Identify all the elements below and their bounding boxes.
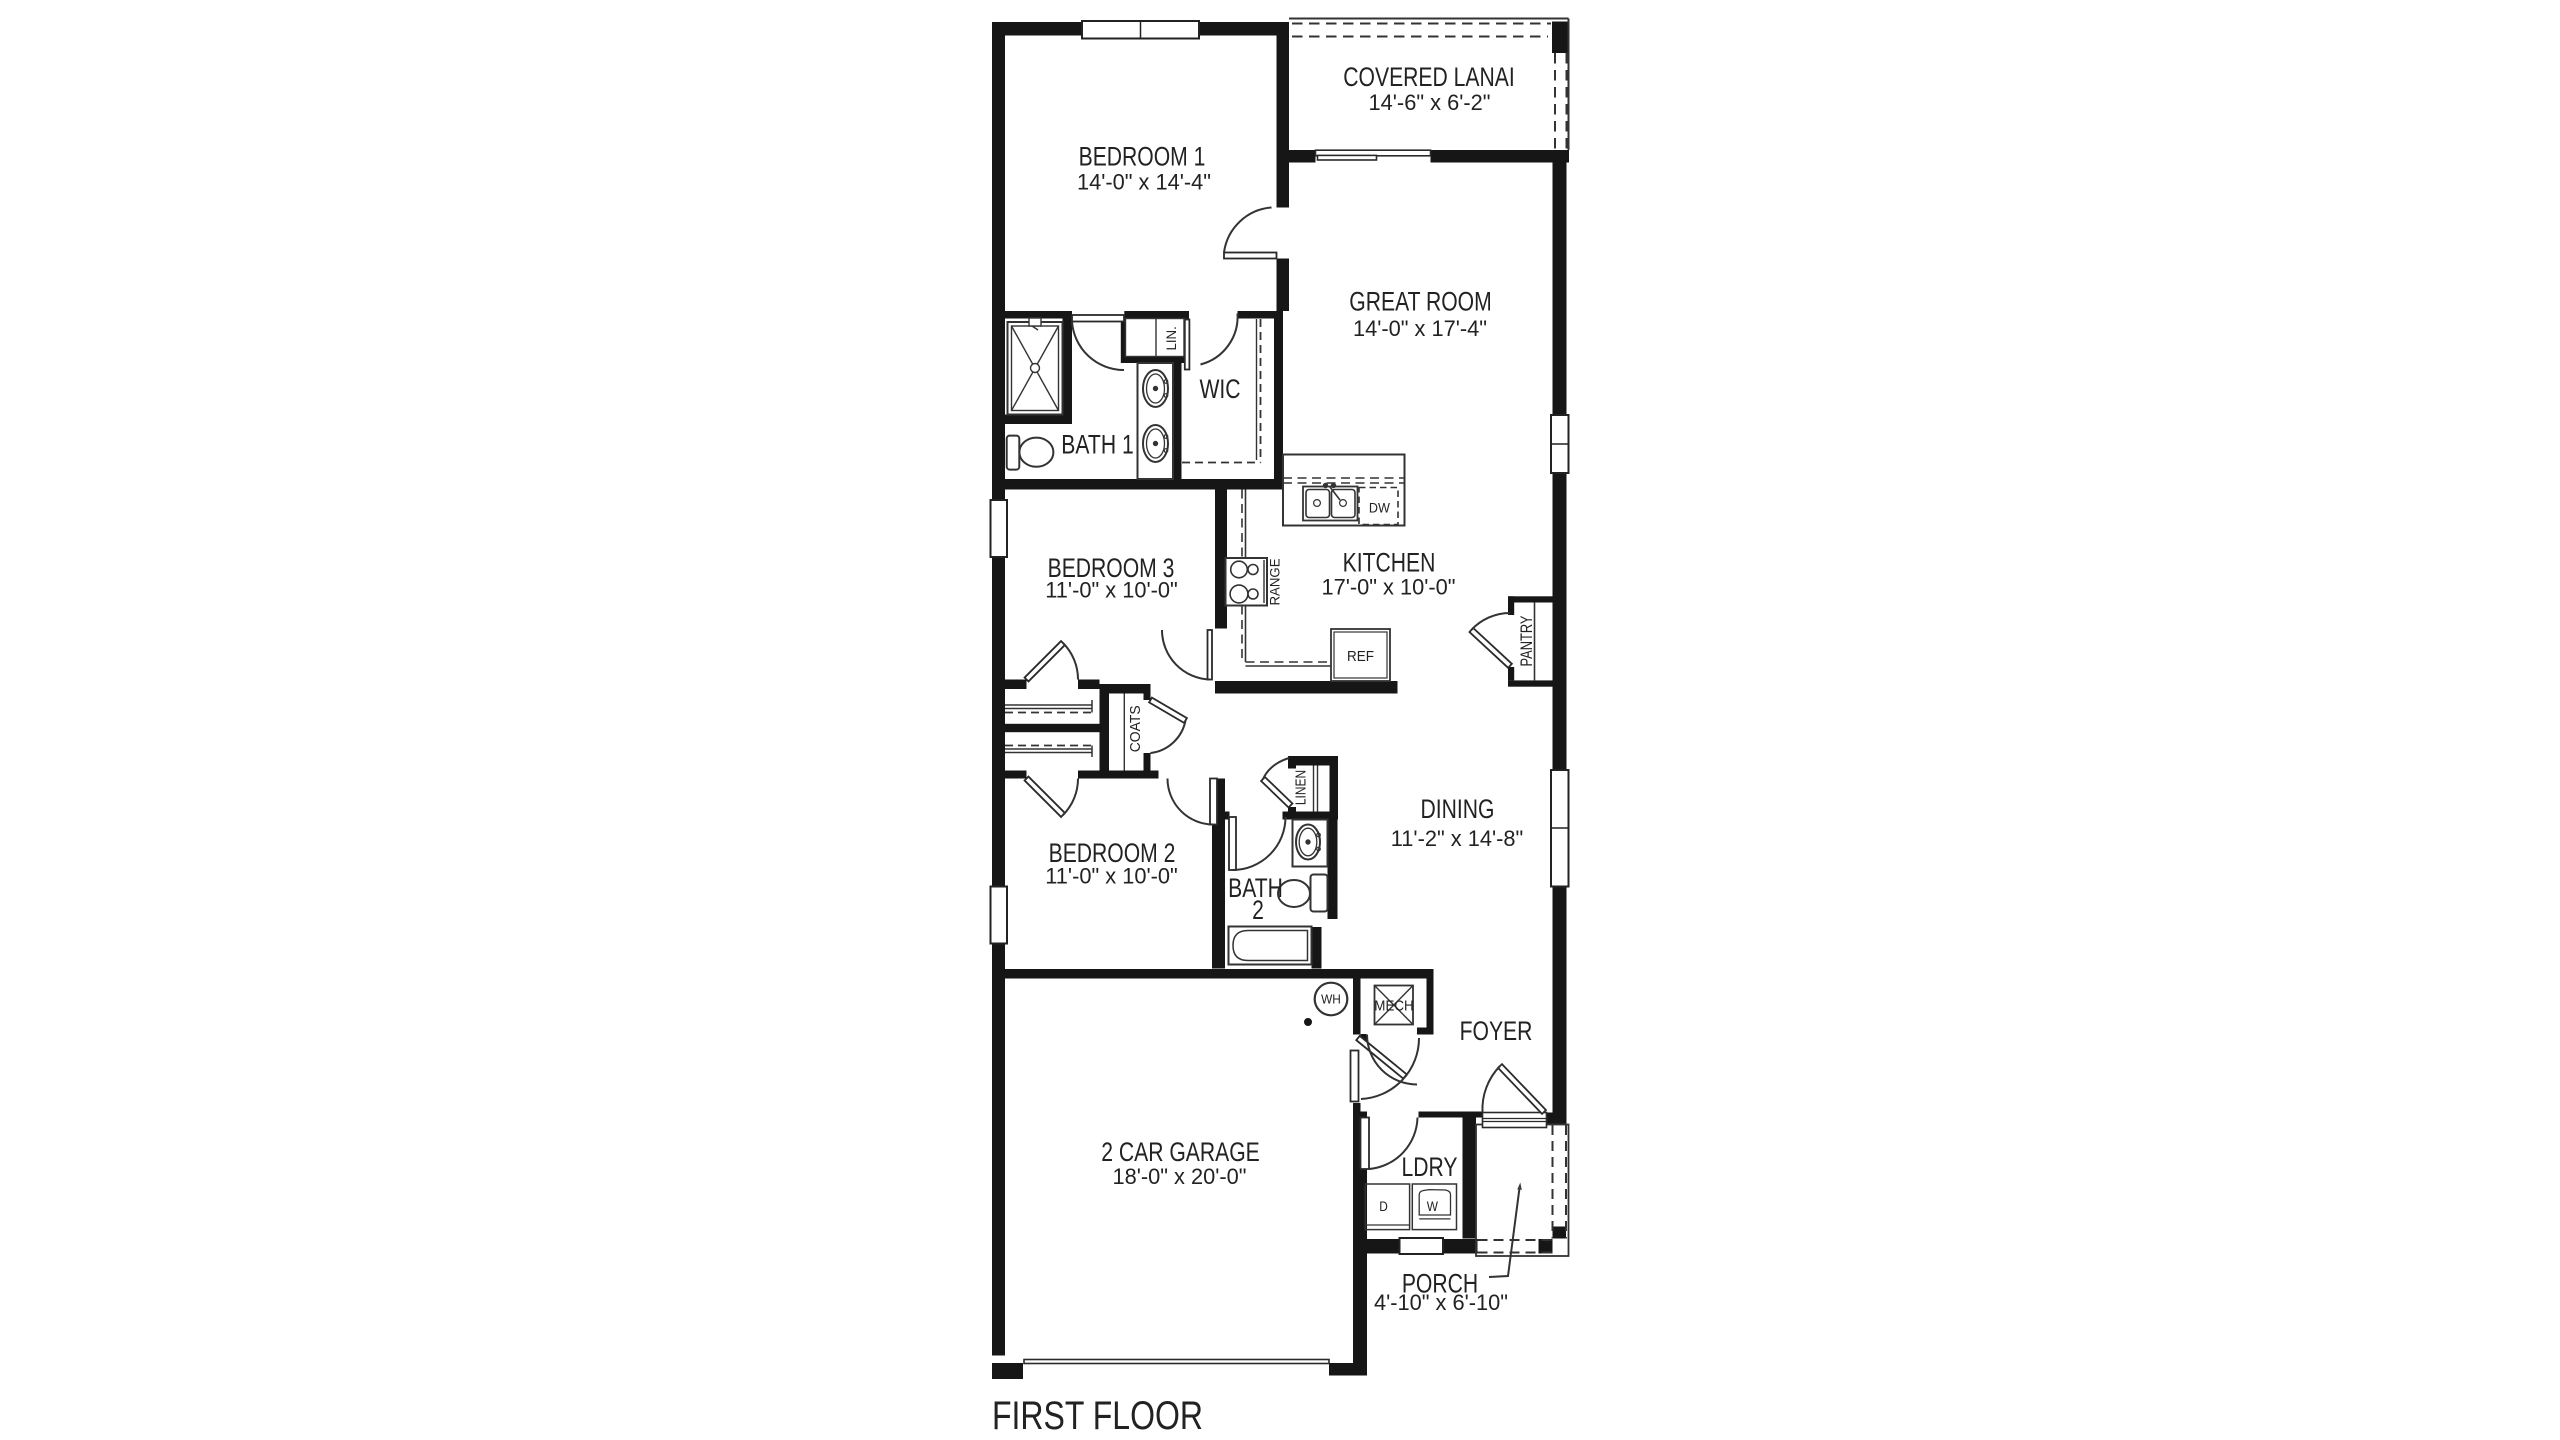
svg-text:LINEN: LINEN <box>1292 770 1309 805</box>
svg-text:LIN.: LIN. <box>1164 326 1179 350</box>
svg-text:4'-10" x 6'-10": 4'-10" x 6'-10" <box>1374 1290 1508 1315</box>
svg-text:D: D <box>1379 1198 1388 1214</box>
svg-text:RANGE: RANGE <box>1267 558 1282 605</box>
svg-text:11'-2" x 14'-8": 11'-2" x 14'-8" <box>1391 826 1523 851</box>
svg-text:REF: REF <box>1347 648 1374 665</box>
svg-text:2: 2 <box>1252 896 1264 926</box>
svg-text:11'-0" x 10'-0": 11'-0" x 10'-0" <box>1045 578 1177 603</box>
svg-text:14'-0" x 17'-4": 14'-0" x 17'-4" <box>1353 316 1487 341</box>
svg-text:14'-0" x 14'-4": 14'-0" x 14'-4" <box>1077 170 1211 195</box>
svg-text:18'-0" x 20'-0": 18'-0" x 20'-0" <box>1112 1164 1246 1189</box>
svg-text:DINING: DINING <box>1421 795 1495 825</box>
svg-text:WH: WH <box>1321 992 1341 1006</box>
svg-text:W: W <box>1427 1198 1439 1214</box>
svg-text:WIC: WIC <box>1199 375 1240 405</box>
svg-text:PANTRY: PANTRY <box>1519 615 1537 666</box>
svg-text:BATH 1: BATH 1 <box>1061 430 1133 460</box>
svg-text:14'-6" x 6'-2": 14'-6" x 6'-2" <box>1369 90 1491 115</box>
svg-text:17'-0" x 10'-0": 17'-0" x 10'-0" <box>1321 575 1455 600</box>
svg-text:FIRST FLOOR: FIRST FLOOR <box>992 1393 1203 1438</box>
svg-text:FOYER: FOYER <box>1460 1017 1533 1047</box>
svg-text:COATS: COATS <box>1128 705 1144 752</box>
svg-text:LDRY: LDRY <box>1402 1153 1458 1183</box>
svg-text:MECH: MECH <box>1374 997 1413 1014</box>
svg-text:11'-0" x 10'-0": 11'-0" x 10'-0" <box>1045 864 1177 889</box>
svg-text:COVERED LANAI: COVERED LANAI <box>1343 63 1514 93</box>
svg-text:GREAT ROOM: GREAT ROOM <box>1349 287 1491 317</box>
svg-text:BEDROOM 1: BEDROOM 1 <box>1079 142 1206 172</box>
svg-text:DW: DW <box>1369 500 1390 516</box>
